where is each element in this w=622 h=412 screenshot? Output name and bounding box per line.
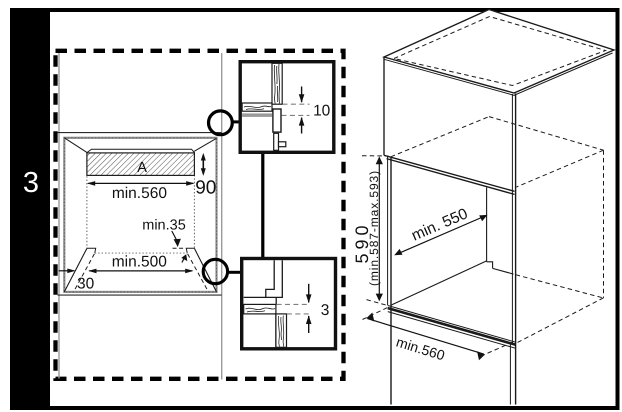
svg-text:10: 10 — [313, 102, 331, 119]
svg-text:30: 30 — [77, 276, 95, 293]
svg-text:3: 3 — [23, 167, 39, 199]
svg-text:min.500: min.500 — [112, 254, 168, 271]
svg-text:A: A — [137, 160, 147, 176]
svg-text:3: 3 — [321, 302, 330, 319]
svg-text:(min.587-max.593): (min.587-max.593) — [367, 170, 381, 286]
svg-text:90: 90 — [195, 178, 216, 199]
svg-text:min.560: min.560 — [112, 185, 168, 202]
svg-text:min.35: min.35 — [142, 218, 186, 234]
